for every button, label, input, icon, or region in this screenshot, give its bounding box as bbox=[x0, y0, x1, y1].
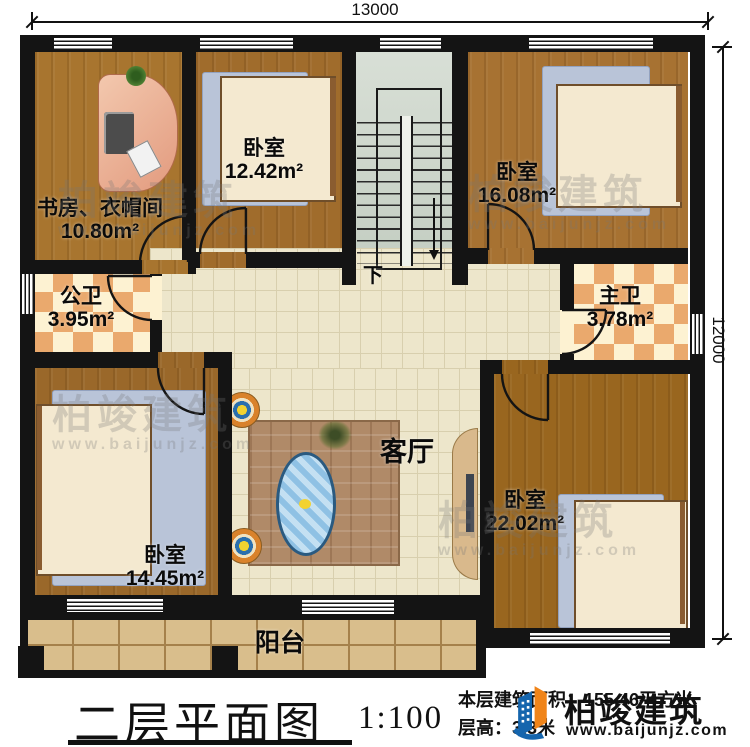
brand-logo-icon bbox=[506, 684, 558, 742]
brand-website: www.baijunjz.com bbox=[566, 722, 728, 740]
door-arc bbox=[158, 368, 204, 414]
door-arc bbox=[140, 216, 188, 262]
drawing-scale: 1:100 bbox=[358, 700, 443, 737]
door-arc bbox=[108, 276, 152, 320]
door-arc bbox=[200, 208, 246, 254]
dimension-width-line bbox=[32, 21, 708, 23]
door-arc bbox=[488, 204, 534, 250]
dimension-width-label: 13000 bbox=[30, 0, 720, 20]
door-arcs-layer bbox=[0, 0, 750, 747]
drawing-title-underline bbox=[68, 740, 352, 745]
door-arc bbox=[502, 374, 548, 420]
drawing-title: 二层平面图 bbox=[74, 688, 324, 747]
dimension-height-label: 12000 bbox=[708, 310, 728, 370]
floor-plan-canvas: 13000 12000 bbox=[0, 0, 750, 747]
door-arc bbox=[562, 310, 606, 354]
